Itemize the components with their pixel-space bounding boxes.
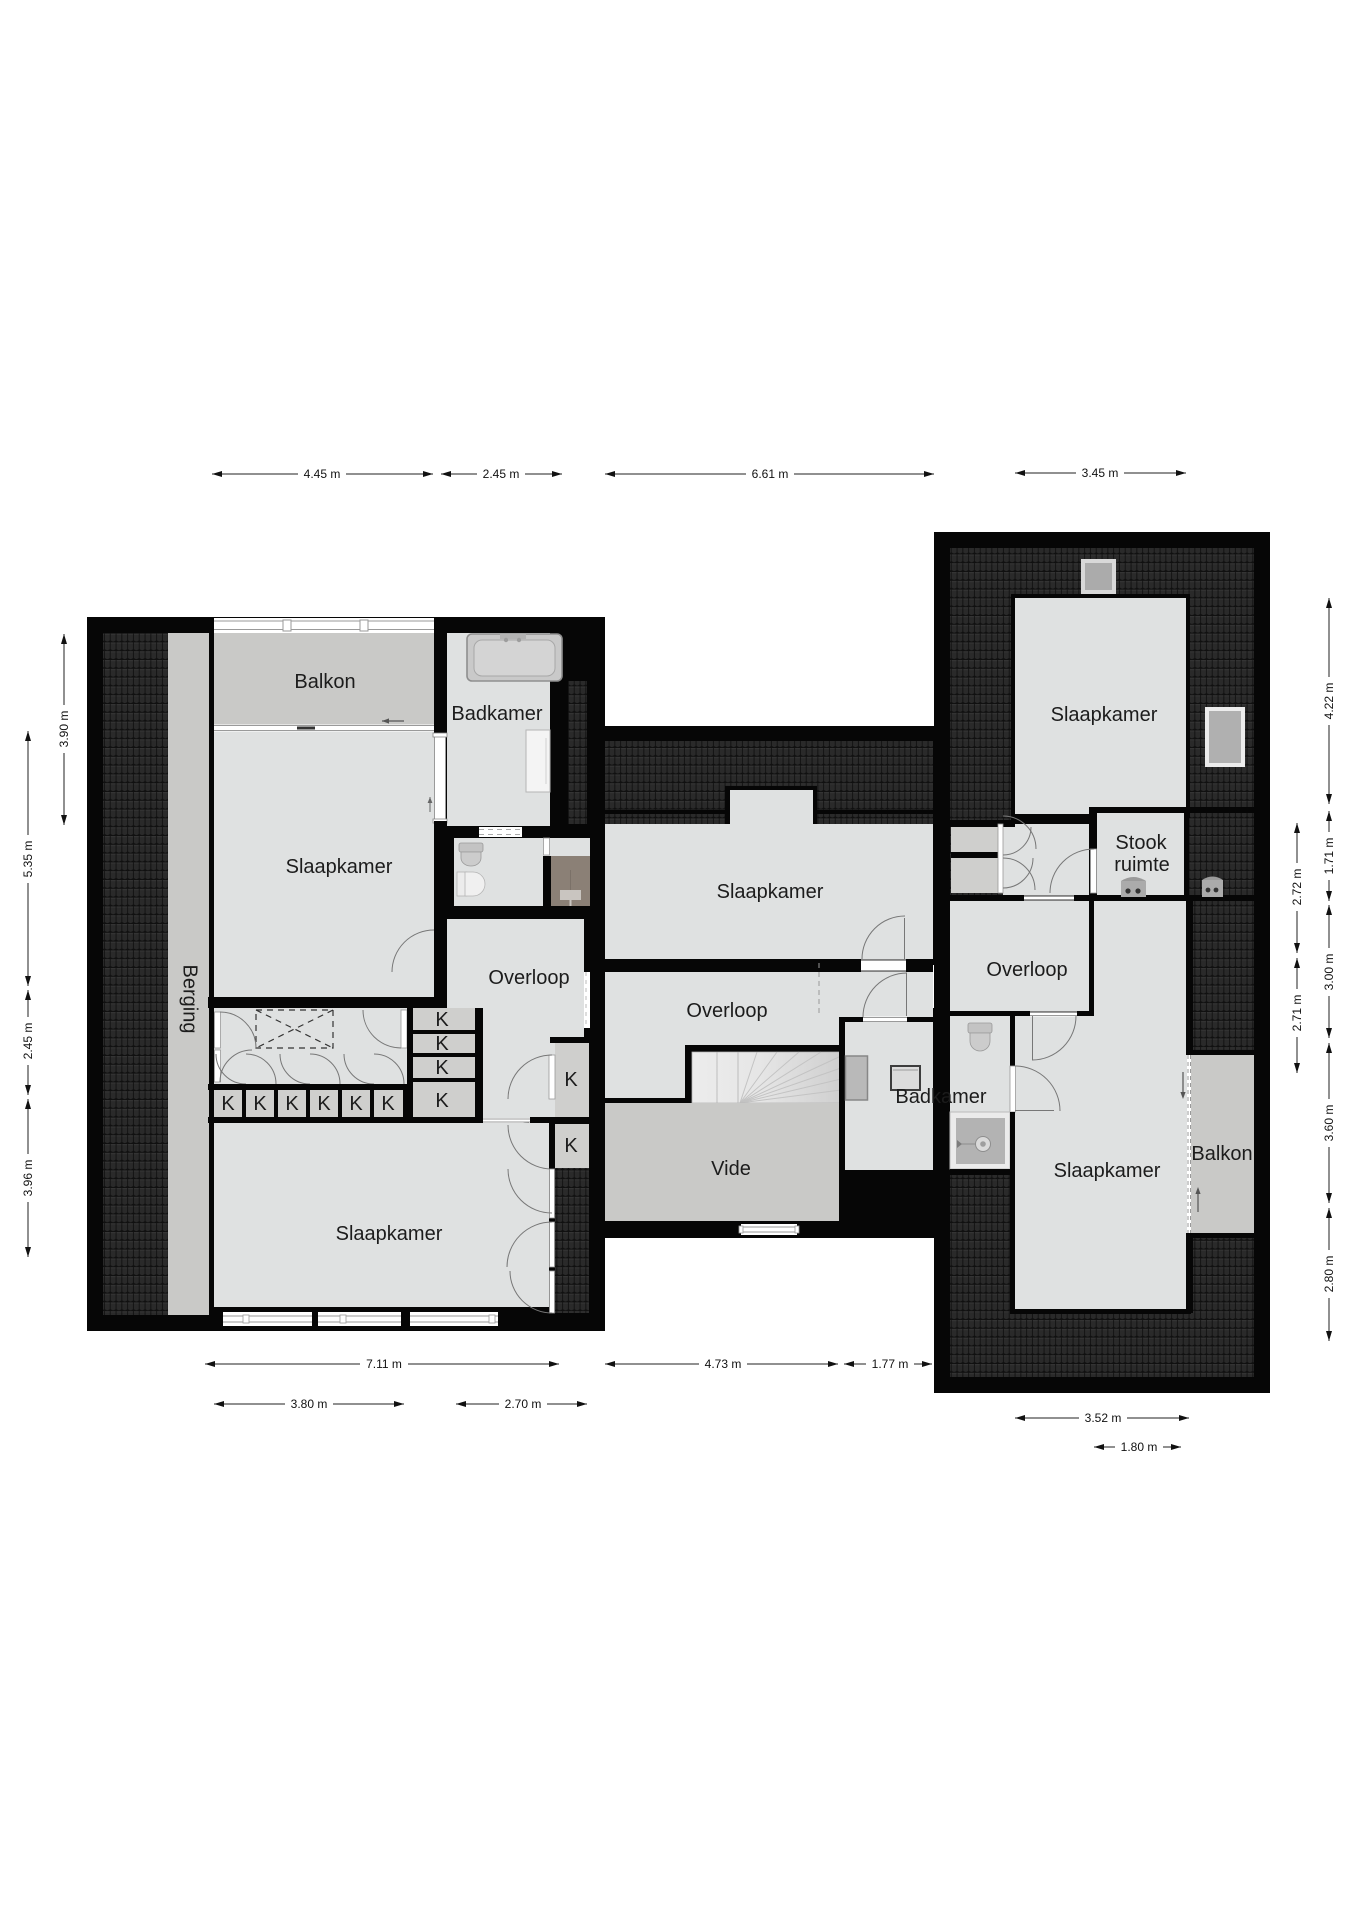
svg-text:Badkamer: Badkamer: [451, 703, 542, 725]
svg-text:Balkon: Balkon: [294, 671, 355, 693]
svg-text:Berging: Berging: [179, 965, 201, 1034]
svg-text:K: K: [435, 1009, 449, 1031]
svg-text:K: K: [435, 1033, 449, 1055]
svg-text:Vide: Vide: [711, 1158, 751, 1180]
svg-text:K: K: [253, 1093, 267, 1115]
svg-text:Badkamer: Badkamer: [895, 1086, 986, 1108]
svg-text:7.11 m: 7.11 m: [366, 1357, 402, 1371]
svg-text:Overloop: Overloop: [686, 1000, 767, 1022]
svg-text:3.80 m: 3.80 m: [291, 1397, 328, 1411]
svg-text:2.72 m: 2.72 m: [1290, 869, 1304, 906]
svg-text:Overloop: Overloop: [488, 967, 569, 989]
svg-text:2.70 m: 2.70 m: [505, 1397, 542, 1411]
svg-text:2.80 m: 2.80 m: [1322, 1256, 1336, 1293]
svg-text:Slaapkamer: Slaapkamer: [336, 1223, 443, 1245]
svg-text:4.45 m: 4.45 m: [304, 467, 341, 481]
svg-text:ruimte: ruimte: [1114, 854, 1170, 876]
svg-text:K: K: [381, 1093, 395, 1115]
svg-text:3.90 m: 3.90 m: [57, 711, 71, 748]
svg-text:Overloop: Overloop: [986, 959, 1067, 981]
svg-text:Slaapkamer: Slaapkamer: [1054, 1160, 1161, 1182]
svg-text:6.61 m: 6.61 m: [752, 467, 789, 481]
svg-text:3.60 m: 3.60 m: [1322, 1105, 1336, 1142]
svg-text:Slaapkamer: Slaapkamer: [717, 881, 824, 903]
svg-text:Slaapkamer: Slaapkamer: [1051, 704, 1158, 726]
svg-text:5.35 m: 5.35 m: [21, 841, 35, 878]
svg-text:K: K: [285, 1093, 299, 1115]
svg-text:1.71 m: 1.71 m: [1322, 838, 1336, 875]
svg-text:3.45 m: 3.45 m: [1082, 466, 1119, 480]
svg-text:K: K: [435, 1090, 449, 1112]
svg-text:K: K: [435, 1057, 449, 1079]
svg-text:Balkon: Balkon: [1191, 1143, 1252, 1165]
svg-text:Stook: Stook: [1115, 832, 1167, 854]
svg-text:3.96 m: 3.96 m: [21, 1160, 35, 1197]
svg-text:Slaapkamer: Slaapkamer: [286, 856, 393, 878]
svg-text:4.22 m: 4.22 m: [1322, 683, 1336, 720]
svg-text:1.77 m: 1.77 m: [872, 1357, 909, 1371]
svg-text:3.00 m: 3.00 m: [1322, 954, 1336, 991]
svg-text:3.52 m: 3.52 m: [1085, 1411, 1122, 1425]
svg-text:2.71 m: 2.71 m: [1290, 995, 1304, 1032]
svg-text:1.80 m: 1.80 m: [1121, 1440, 1158, 1454]
svg-text:K: K: [221, 1093, 235, 1115]
svg-text:K: K: [349, 1093, 363, 1115]
svg-text:4.73 m: 4.73 m: [705, 1357, 742, 1371]
svg-text:2.45 m: 2.45 m: [483, 467, 520, 481]
svg-text:K: K: [317, 1093, 331, 1115]
svg-text:K: K: [564, 1135, 578, 1157]
svg-text:K: K: [564, 1069, 578, 1091]
svg-text:2.45 m: 2.45 m: [21, 1023, 35, 1060]
